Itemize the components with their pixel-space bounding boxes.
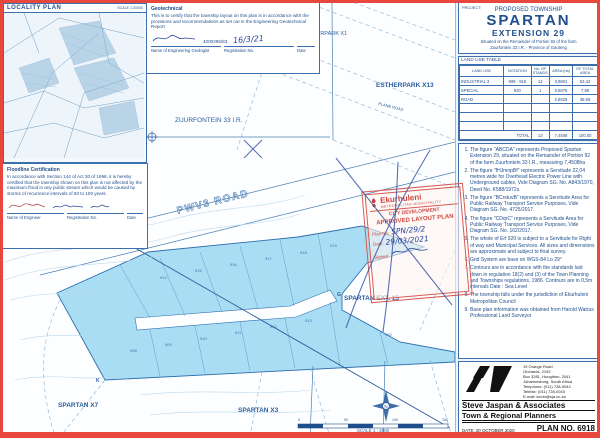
label-spartan-x7: SPARTAN X7 [58, 402, 98, 409]
stamp-signed-label: Signed [374, 254, 388, 260]
stand-number: 912 [270, 324, 277, 329]
stand-number: 914 [160, 275, 167, 280]
planner-firm-block: 19 Orange Road Orchards, 2192 Box 3281, … [458, 361, 599, 436]
stand-number: 913 [305, 318, 312, 323]
firm-title: Town & Regional Planners [462, 410, 595, 421]
handwritten-registration-scribble [51, 201, 85, 211]
stand-number: 919 [330, 243, 337, 248]
label-zuurfontein: ZUURFONTEIN 33 I.R. [175, 117, 243, 124]
table-total-row: TOTAL 13 7,4508 100,00 [460, 131, 598, 140]
project-title-block: PROJECT: PROPOSED TOWNSHIP SPARTAN EXTEN… [458, 2, 599, 54]
floodline-body: In accordance with Section 144 of Act 30… [7, 174, 143, 197]
locality-map-texture [4, 13, 144, 158]
beacon-icon [146, 131, 158, 143]
geotech-registration-no: 4000295/83 [203, 39, 227, 44]
handwritten-date-scribble [89, 201, 111, 211]
township-subtitle2: Zuurfontein 33 I.R. - Province of Gauten… [463, 45, 594, 50]
floodline-registration-label: Registration No. [67, 213, 124, 220]
scale-caption: SCALE 1 : 2000 [298, 428, 448, 433]
township-name: SPARTAN [463, 13, 594, 28]
note-item: Grid System are base on WGS-84 Lo 29° [470, 257, 595, 263]
note-item: The figure "BCrstuvB" represents a Servi… [470, 195, 595, 214]
firm-name: Steve Jaspan & Associates [462, 400, 595, 410]
label-estherpark-x13: ESTHERPARK X13 [376, 82, 434, 89]
notes-panel: The figure "ABCDA" represents Proposed S… [458, 143, 599, 359]
note-item: The figure "CDqrC" represents a Servitud… [470, 216, 595, 235]
geotech-registration-label: Registration No. [224, 46, 294, 53]
stamp-plan-no-label: Plan No: [372, 230, 390, 236]
label-point-g: G [337, 292, 341, 298]
stand-number: 915 [195, 268, 202, 273]
geotech-body: This is to certify that the township lay… [151, 13, 315, 30]
geotechnical-certificate: Geotechnical This is to certify that the… [146, 2, 320, 74]
floodline-certificate: Floodline Certification In accordance wi… [2, 163, 148, 249]
ekurhuleni-logo-icon [369, 197, 379, 209]
stand-number: 910 [200, 336, 207, 341]
stand-number: 911 [235, 330, 241, 335]
locality-title: LOCALITY PLAN [7, 5, 61, 11]
plan-number: PLAN NO. 6918 [537, 424, 595, 433]
geotech-name-label: Name of Engineering Geologist [151, 46, 221, 53]
land-use-table-title: LAND USE TABLE [459, 57, 598, 65]
project-label: PROJECT: [462, 5, 481, 10]
note-item: The figure "fHJmnpBf" represents a Servi… [470, 168, 595, 193]
floodline-name-label: Name of Engineer [7, 213, 64, 220]
township-subtitle1: Situated on the Remainder of Portion 92 … [463, 39, 594, 44]
firm-logo-icon [462, 364, 520, 398]
geotech-title: Geotechnical [151, 6, 315, 12]
note-item: Base plan information was obtained from … [470, 307, 595, 320]
note-item: Contours are in accordance with the stan… [470, 265, 595, 290]
stamp-date-label: Date: [373, 241, 384, 247]
table-row-empty [460, 113, 598, 122]
stand-number: 909 [165, 342, 172, 347]
township-extension: EXTENSION 29 [463, 28, 594, 38]
table-row: ROAD 2,8829 38,69 [460, 95, 598, 104]
stand-number: 908 [130, 348, 137, 353]
label-spartan-x3: SPARTAN X3 [238, 407, 278, 414]
floodline-title: Floodline Certification [7, 167, 143, 173]
table-row: INDUSTRIAL 3 908 - 919 12 3,9801 53,42 [460, 77, 598, 86]
geotech-date-handwritten: 16/3/21 [233, 34, 264, 45]
plan-date: DATE: 20 OCTOBER 2020 [462, 428, 515, 433]
locality-scale: SCALE 1:20000 [117, 6, 143, 10]
note-item: The whole of Erf 920 is subject to a Ser… [470, 236, 595, 255]
stand-number: 918 [300, 250, 307, 255]
note-item: The township falls under the jurisdictio… [470, 292, 595, 305]
label-point-k: K [96, 378, 100, 384]
table-row-empty [460, 104, 598, 113]
title-panel: PROJECT: PROPOSED TOWNSHIP SPARTAN EXTEN… [455, 0, 600, 438]
stand-number: 920 [385, 332, 392, 337]
stand-number: 916 [230, 262, 237, 267]
signature-icon [151, 32, 197, 44]
scanned-township-plan: N ESTHERPARK X1 ESTHERPARK X13 ZUURFON [0, 0, 600, 438]
stamp-signature-icon [389, 244, 430, 257]
svg-text:N: N [384, 404, 387, 409]
stand-number: 917 [265, 256, 272, 261]
note-item: The figure "ABCDA" represents Proposed S… [470, 147, 595, 166]
scale-tick-labels: 050 100150 [298, 418, 448, 422]
geotech-date-label: Date [297, 46, 315, 53]
firm-address: 19 Orange Road Orchards, 2192 Box 3281, … [523, 364, 572, 399]
land-use-table: LAND USE TABLE LAND USE NOTATION No. OF … [458, 56, 599, 141]
table-row: SPECIAL 920 1 0,5878 7,89 [460, 86, 598, 95]
locality-plan-inset: LOCALITY PLAN SCALE 1:20000 [3, 3, 147, 163]
table-row-empty [460, 122, 598, 131]
floodline-date-label: Date [127, 213, 143, 220]
map-scale: 050 100150 SCALE 1 : 2000 [298, 418, 448, 433]
signature-icon [7, 199, 47, 211]
table-header-row: LAND USE NOTATION No. OF STANDS AREA [ha… [460, 66, 598, 77]
ekurhuleni-approval-stamp: Ekurhuleni METROPOLITAN MUNICIPALITY CIT… [365, 186, 470, 300]
